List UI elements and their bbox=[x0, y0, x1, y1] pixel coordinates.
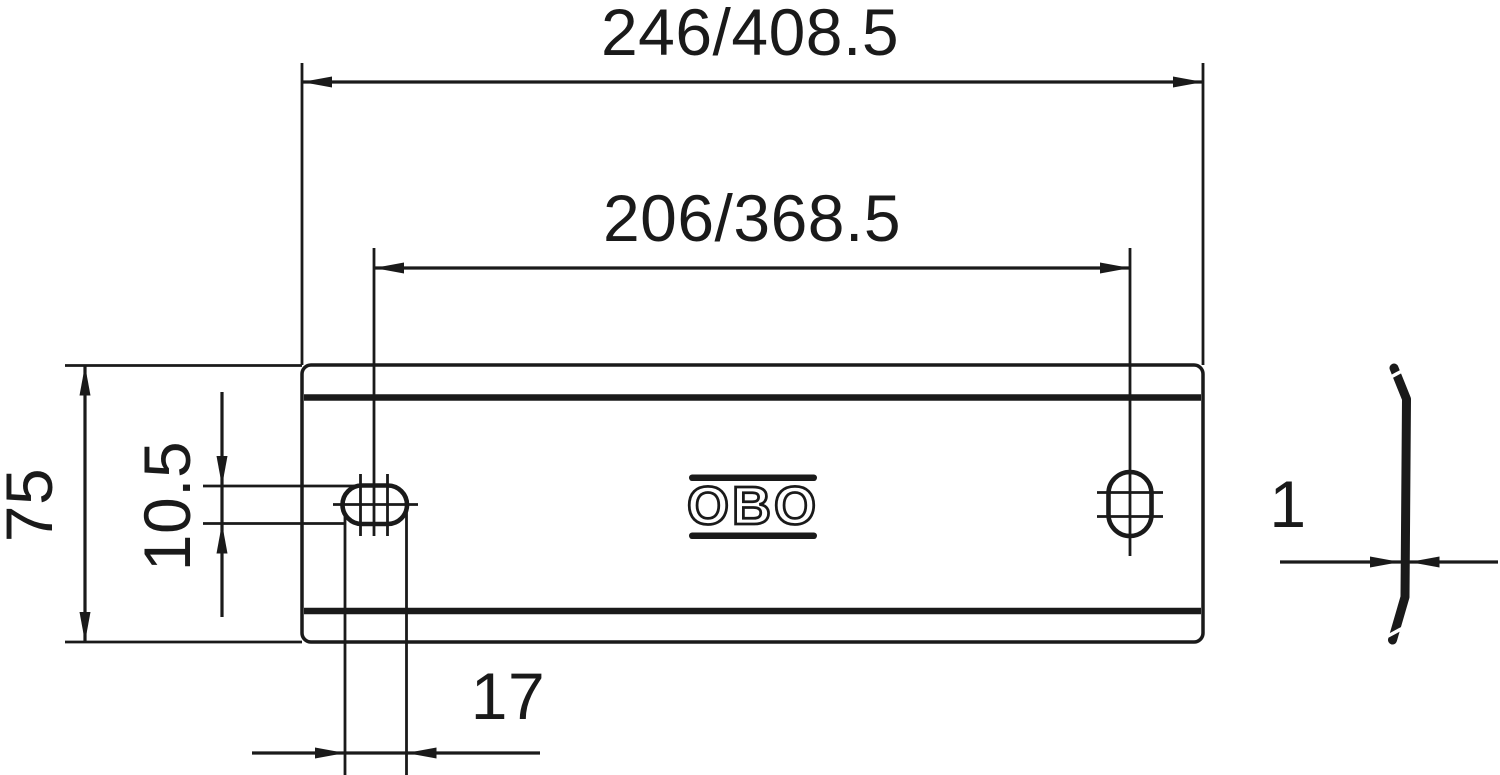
profile-outline bbox=[1393, 368, 1407, 640]
arrowhead-left bbox=[374, 263, 404, 274]
dim-slot-height: 10.5 bbox=[130, 392, 355, 617]
arrowhead-right bbox=[315, 748, 345, 759]
obo-logo-text: OBO bbox=[687, 476, 819, 536]
arrowhead-left bbox=[302, 77, 332, 88]
dim-thickness-label: 1 bbox=[1269, 467, 1306, 541]
dim-slot-width-label: 17 bbox=[471, 659, 545, 733]
arrowhead-right bbox=[1173, 77, 1203, 88]
dim-overall-height-label: 75 bbox=[0, 468, 66, 542]
dim-thickness: 1 bbox=[1269, 467, 1498, 568]
arrowhead-left bbox=[407, 748, 437, 759]
technical-drawing: OBO 246/408.5 206/368.5 75 10.5 bbox=[0, 0, 1500, 775]
arrowhead-right bbox=[1100, 263, 1130, 274]
arrowhead-up bbox=[80, 366, 91, 396]
drawing-canvas: OBO 246/408.5 206/368.5 75 10.5 bbox=[0, 0, 1500, 775]
arrowhead-down bbox=[217, 456, 228, 486]
arrowhead-down bbox=[80, 612, 91, 642]
arrowhead-up bbox=[217, 524, 228, 554]
dim-slot-height-label: 10.5 bbox=[130, 441, 204, 571]
arrowhead-right bbox=[1370, 557, 1400, 568]
dim-overall-width-label: 246/408.5 bbox=[601, 0, 899, 69]
arrowhead-left bbox=[1410, 557, 1440, 568]
obo-logo: OBO bbox=[687, 475, 819, 540]
front-view: OBO bbox=[302, 365, 1203, 642]
dim-hole-spacing-label: 206/368.5 bbox=[603, 181, 901, 255]
side-view bbox=[1388, 368, 1407, 640]
